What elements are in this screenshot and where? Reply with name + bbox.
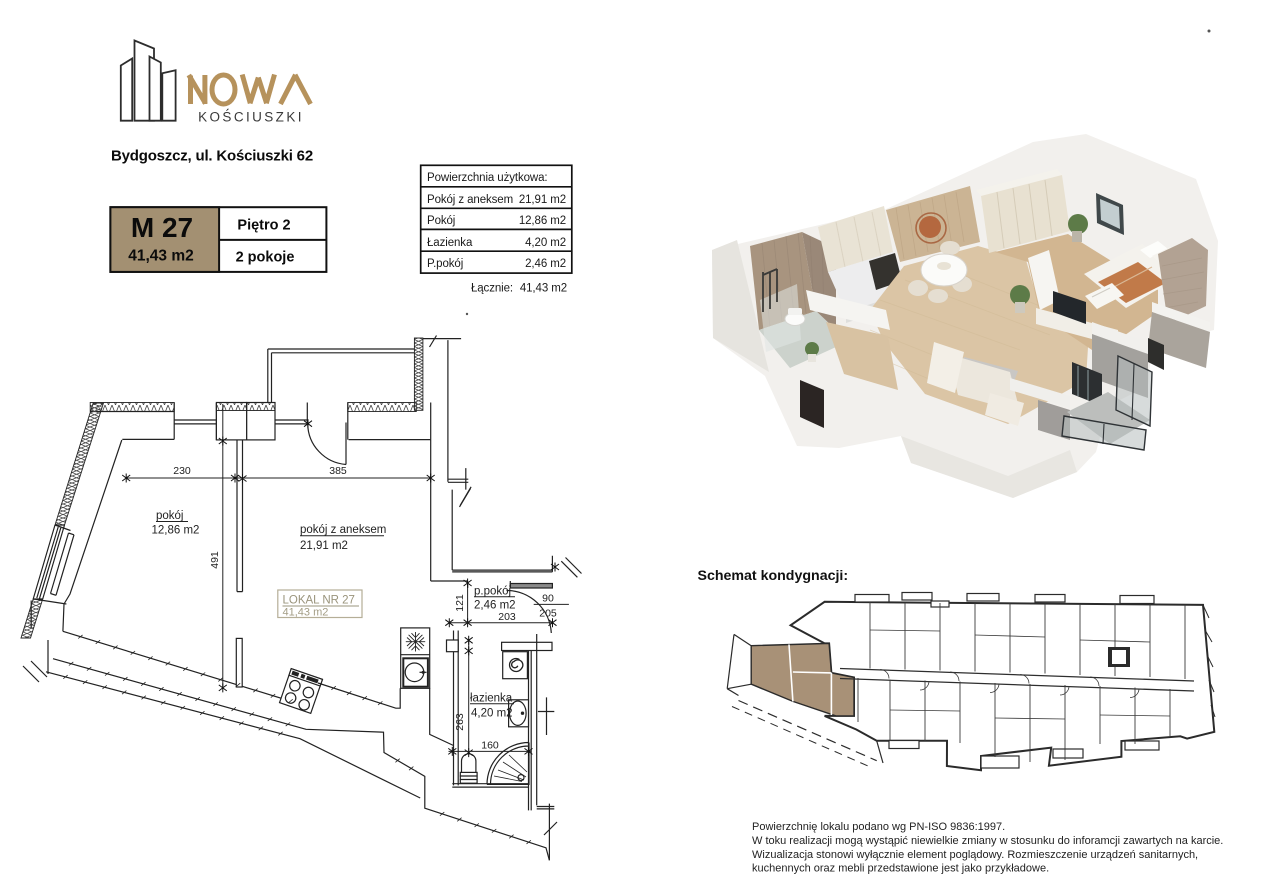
svg-text:P.pokój: P.pokój <box>427 258 463 270</box>
svg-text:2,46 m2: 2,46 m2 <box>525 258 566 270</box>
svg-text:LOKAL NR 27: LOKAL NR 27 <box>283 595 355 607</box>
svg-text:KOŚCIUSZKI: KOŚCIUSZKI <box>198 110 304 125</box>
svg-text:263: 263 <box>454 713 466 731</box>
svg-text:205: 205 <box>539 608 557 620</box>
svg-text:kuchennych oraz mebli przedsta: kuchennych oraz mebli przedstawione jest… <box>752 863 1049 875</box>
svg-text:160: 160 <box>481 740 499 752</box>
svg-text:M 27: M 27 <box>131 212 193 243</box>
svg-text:Powierzchnia użytkowa:: Powierzchnia użytkowa: <box>427 172 548 184</box>
svg-text:Łazienka: Łazienka <box>427 237 473 249</box>
svg-text:21,91 m2: 21,91 m2 <box>300 540 348 552</box>
svg-text:Wizualizacja stonowi wyłącznie: Wizualizacja stonowi wyłącznie element p… <box>752 849 1198 861</box>
svg-text:p.pokój: p.pokój <box>474 586 511 598</box>
svg-text:pokój: pokój <box>156 510 184 522</box>
svg-text:W toku realizacji mogą wystąpi: W toku realizacji mogą wystąpić niewielk… <box>752 835 1223 847</box>
svg-text:385: 385 <box>329 465 347 477</box>
svg-text:2,46 m2: 2,46 m2 <box>474 600 516 612</box>
svg-text:41,43 m2: 41,43 m2 <box>128 248 194 265</box>
svg-text:12,86 m2: 12,86 m2 <box>152 525 200 537</box>
svg-text:4,20 m2: 4,20 m2 <box>471 708 513 720</box>
svg-text:90: 90 <box>542 593 554 605</box>
svg-text:230: 230 <box>173 465 191 477</box>
svg-text:2 pokoje: 2 pokoje <box>236 250 295 266</box>
svg-text:12,86 m2: 12,86 m2 <box>519 215 566 227</box>
svg-text:121: 121 <box>454 594 466 612</box>
svg-text:41,43 m2: 41,43 m2 <box>283 607 329 619</box>
svg-text:Bydgoszcz, ul. Kościuszki 62: Bydgoszcz, ul. Kościuszki 62 <box>111 148 313 165</box>
svg-text:Piętro 2: Piętro 2 <box>237 218 290 234</box>
svg-text:21,91 m2: 21,91 m2 <box>519 194 566 206</box>
svg-text:203: 203 <box>498 611 516 623</box>
svg-text:491: 491 <box>209 551 221 569</box>
svg-text:Schemat kondygnacji:: Schemat kondygnacji: <box>698 568 849 584</box>
svg-text:Łącznie:: Łącznie: <box>471 283 513 295</box>
svg-text:pokój z aneksem: pokój z aneksem <box>300 524 386 536</box>
svg-text:Powierzchnię lokalu podano wg: Powierzchnię lokalu podano wg PN-ISO 983… <box>752 821 1005 833</box>
svg-text:Pokój: Pokój <box>427 215 455 227</box>
svg-text:41,43 m2: 41,43 m2 <box>520 283 567 295</box>
svg-text:łazienka: łazienka <box>470 693 513 705</box>
svg-text:4,20 m2: 4,20 m2 <box>525 237 566 249</box>
svg-text:Pokój z aneksem: Pokój z aneksem <box>427 194 513 206</box>
